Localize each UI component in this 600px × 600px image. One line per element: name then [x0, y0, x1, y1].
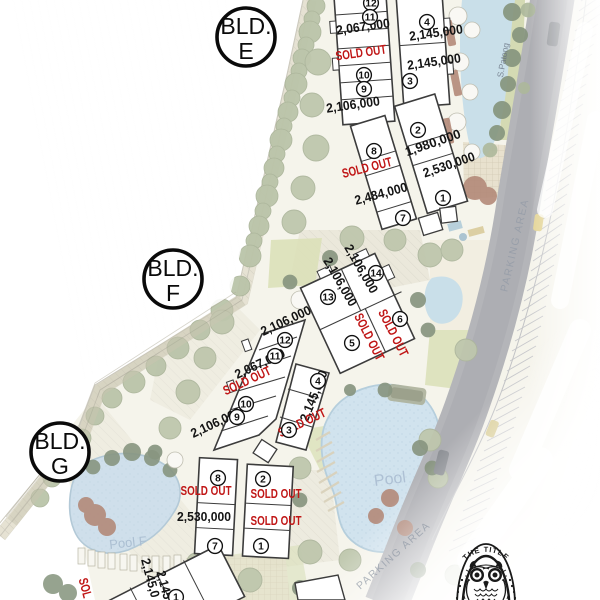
- svg-text:10: 10: [240, 400, 252, 411]
- svg-text:14: 14: [370, 269, 382, 280]
- svg-text:1: 1: [258, 542, 264, 553]
- svg-text:4: 4: [424, 18, 430, 29]
- svg-text:BLD.: BLD.: [220, 13, 271, 39]
- svg-text:SOLD OUT: SOLD OUT: [251, 486, 302, 501]
- svg-text:5: 5: [349, 339, 355, 350]
- svg-text:7: 7: [212, 542, 218, 553]
- svg-text:3: 3: [286, 426, 292, 437]
- svg-text:9: 9: [234, 413, 240, 424]
- svg-text:E: E: [238, 38, 253, 64]
- svg-text:10: 10: [358, 71, 370, 82]
- svg-text:3: 3: [407, 77, 413, 88]
- svg-text:SOLD OUT: SOLD OUT: [251, 513, 302, 528]
- svg-text:8: 8: [371, 147, 377, 158]
- svg-text:9: 9: [361, 85, 367, 96]
- svg-text:F: F: [166, 280, 180, 306]
- svg-text:1: 1: [173, 593, 179, 600]
- svg-text:2: 2: [415, 126, 421, 137]
- svg-text:13: 13: [322, 293, 334, 304]
- svg-text:2,530,000: 2,530,000: [177, 509, 231, 524]
- svg-text:BLD.: BLD.: [147, 255, 198, 281]
- svg-text:BLD.: BLD.: [34, 428, 85, 454]
- svg-text:12: 12: [365, 0, 377, 10]
- svg-text:12: 12: [279, 336, 291, 347]
- svg-text:7: 7: [400, 214, 406, 225]
- svg-text:SOLD OUT: SOLD OUT: [181, 483, 232, 498]
- svg-text:11: 11: [365, 13, 376, 24]
- svg-text:6: 6: [397, 315, 403, 326]
- svg-text:11: 11: [270, 352, 281, 363]
- svg-text:2: 2: [260, 475, 266, 486]
- svg-text:1: 1: [440, 194, 446, 205]
- svg-text:8: 8: [215, 474, 221, 485]
- svg-text:4: 4: [315, 377, 321, 388]
- svg-text:G: G: [51, 453, 69, 479]
